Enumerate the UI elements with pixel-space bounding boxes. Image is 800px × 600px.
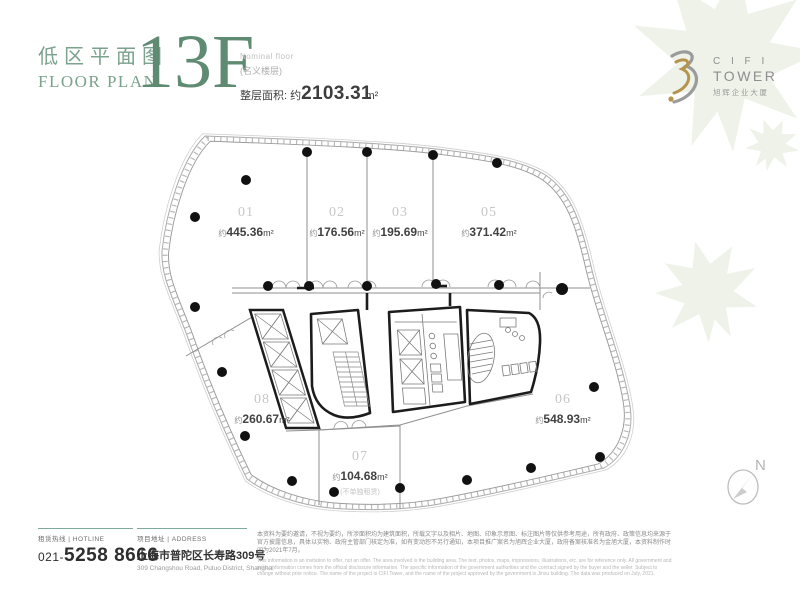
unit-label-02: 02 约176.56m²: [309, 205, 364, 241]
core-block-wc: [467, 310, 540, 404]
total-area-label: 整层面积: 约: [240, 87, 301, 103]
area-value: 445.36: [226, 225, 263, 239]
area-prefix: 约: [234, 416, 242, 425]
hotline-block: 租赁热线 | HOTLINE 021-5258 8666: [38, 528, 133, 567]
unit-number: 03: [372, 205, 427, 221]
area-unit: m²: [506, 228, 517, 238]
unit-number: 07: [332, 449, 387, 465]
area-prefix: 约: [309, 229, 317, 238]
floor-number: 13F: [136, 22, 254, 102]
unit-number: 05: [461, 205, 516, 221]
cifi-tower-logo: C I F I TOWER 旭辉企业大厦: [664, 46, 777, 110]
unit-label-01: 01 约445.36m²: [218, 205, 273, 241]
area-unit: m²: [377, 472, 388, 482]
area-unit: m²: [279, 415, 290, 425]
address-block: 项目地址 | ADDRESS 上海市普陀区长寿路309号 309 Changsh…: [137, 528, 247, 572]
wall-stubs: [297, 286, 450, 310]
area-prefix: 约: [461, 229, 469, 238]
nominal-floor-cn: (名义楼层): [240, 64, 385, 77]
area-prefix: 约: [372, 229, 380, 238]
core-block-stair: [311, 310, 370, 418]
unit-label-05: 05 约371.42m²: [461, 205, 516, 241]
unit-number: 02: [309, 205, 364, 221]
area-value: 104.68: [340, 469, 377, 483]
address-cn: 上海市普陀区长寿路309号: [137, 547, 247, 563]
unit-label-06: 06 约548.93m²: [535, 392, 590, 428]
unit-number: 08: [234, 392, 289, 408]
total-area-value: 2103.31: [301, 83, 372, 105]
address-label: 项目地址 | ADDRESS: [137, 533, 247, 543]
unit-number: 01: [218, 205, 273, 221]
disclaimer-cn: 本资料为要约邀请，不视为要约，所涉面积均为建筑面积，所载文字以及相片、地图、印象…: [257, 531, 673, 555]
area-prefix: 约: [535, 416, 543, 425]
compass-icon: N: [728, 457, 766, 504]
area-value: 548.93: [543, 412, 580, 426]
hotline-number: 021-5258 8666: [38, 545, 133, 567]
compass-north-label: N: [755, 457, 766, 474]
total-area: 整层面积: 约2103.31m²: [240, 83, 385, 105]
total-area-unit: m²: [365, 90, 378, 102]
area-unit: m²: [417, 228, 428, 238]
hotline-label: 租赁热线 | HOTLINE: [38, 533, 133, 543]
service-core: [250, 286, 540, 428]
area-unit: m²: [354, 228, 365, 238]
area-value: 371.42: [469, 225, 506, 239]
area-unit: m²: [580, 415, 591, 425]
logo-line1: C I F I: [713, 56, 777, 67]
address-rule: [137, 528, 247, 529]
area-value: 260.67: [242, 412, 279, 426]
address-en: 309 Changshou Road, Putuo District, Shan…: [137, 565, 247, 572]
disclaimer-en: This information is an invitation to off…: [257, 558, 673, 578]
nominal-floor-block: Nominal floor (名义楼层) 整层面积: 约2103.31m²: [240, 52, 385, 105]
area-value: 176.56: [317, 225, 354, 239]
hotline-prefix: 021-: [38, 550, 64, 564]
nominal-floor-en: Nominal floor: [240, 52, 385, 61]
hotline-rule: [38, 528, 133, 529]
area-prefix: 约: [332, 473, 340, 482]
area-value: 195.69: [380, 225, 417, 239]
unit-number: 06: [535, 392, 590, 408]
area-unit: m²: [263, 228, 274, 238]
area-prefix: 约: [218, 229, 226, 238]
unit-label-08: 08 约260.67m²: [234, 392, 289, 428]
disclaimer-block: 本资料为要约邀请，不视为要约，所涉面积均为建筑面积，所载文字以及相片、地图、印象…: [257, 531, 673, 578]
logo-line3: 旭辉企业大厦: [713, 87, 777, 98]
unit-label-07: 07 约104.68m² (不单独租赁): [332, 449, 387, 497]
unit-note: (不单独租赁): [332, 487, 387, 497]
unit-label-03: 03 约195.69m²: [372, 205, 427, 241]
logo-line2: TOWER: [713, 68, 777, 84]
cifi-logo-mark-icon: [664, 46, 704, 110]
